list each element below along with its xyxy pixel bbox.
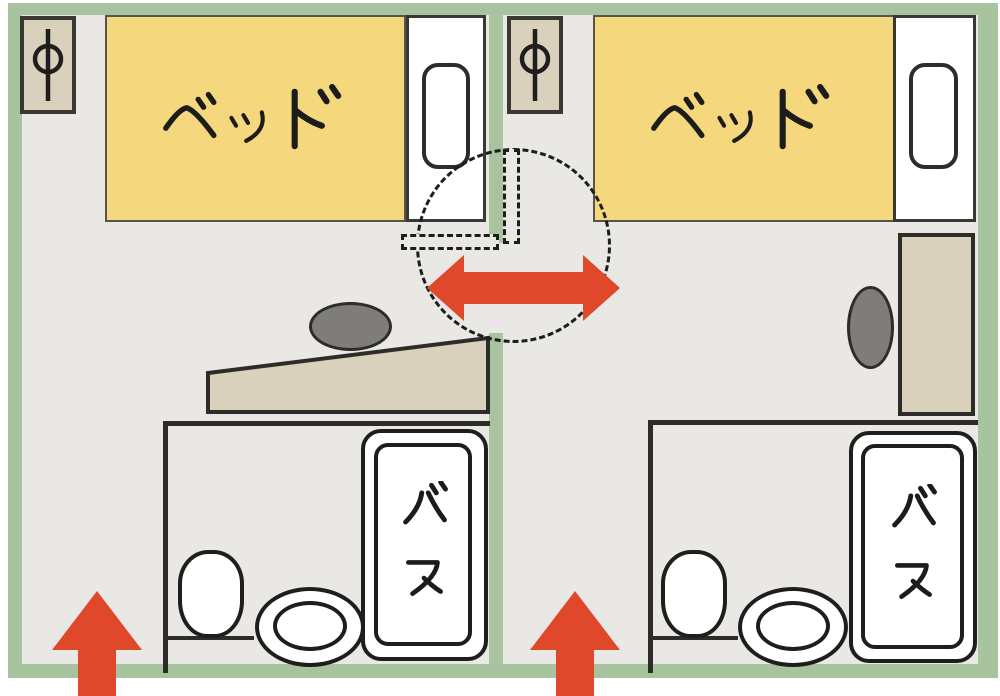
bed-left <box>105 15 406 222</box>
lamp-icon <box>26 23 70 107</box>
bath-label <box>885 484 943 610</box>
bath-label <box>396 481 454 607</box>
pillow-right <box>909 63 958 169</box>
desk-right <box>898 233 975 416</box>
sink-basin-left <box>273 601 347 651</box>
door-leaf-vertical <box>503 149 520 244</box>
toilet-right <box>661 550 727 638</box>
door-leaf-horizontal <box>401 234 499 250</box>
chair-left <box>309 302 392 351</box>
bed-right <box>593 15 895 222</box>
nightstand-right <box>507 16 563 114</box>
entrance-arrow-left-icon <box>50 589 144 696</box>
bathroom-wall-top-left <box>163 421 490 426</box>
chair-right <box>847 286 894 369</box>
nightstand-left <box>20 16 76 114</box>
floor-plan <box>0 0 1000 696</box>
pillow-left <box>422 63 470 169</box>
sink-basin-right <box>756 601 830 651</box>
bed-label <box>161 83 351 155</box>
entrance-arrow-right-icon <box>528 589 622 696</box>
connecting-door-arrow-icon <box>425 253 622 323</box>
bathroom-wall-top-right <box>648 420 978 425</box>
lamp-icon <box>513 23 557 107</box>
bed-label <box>649 83 839 155</box>
toilet-left <box>178 550 244 638</box>
